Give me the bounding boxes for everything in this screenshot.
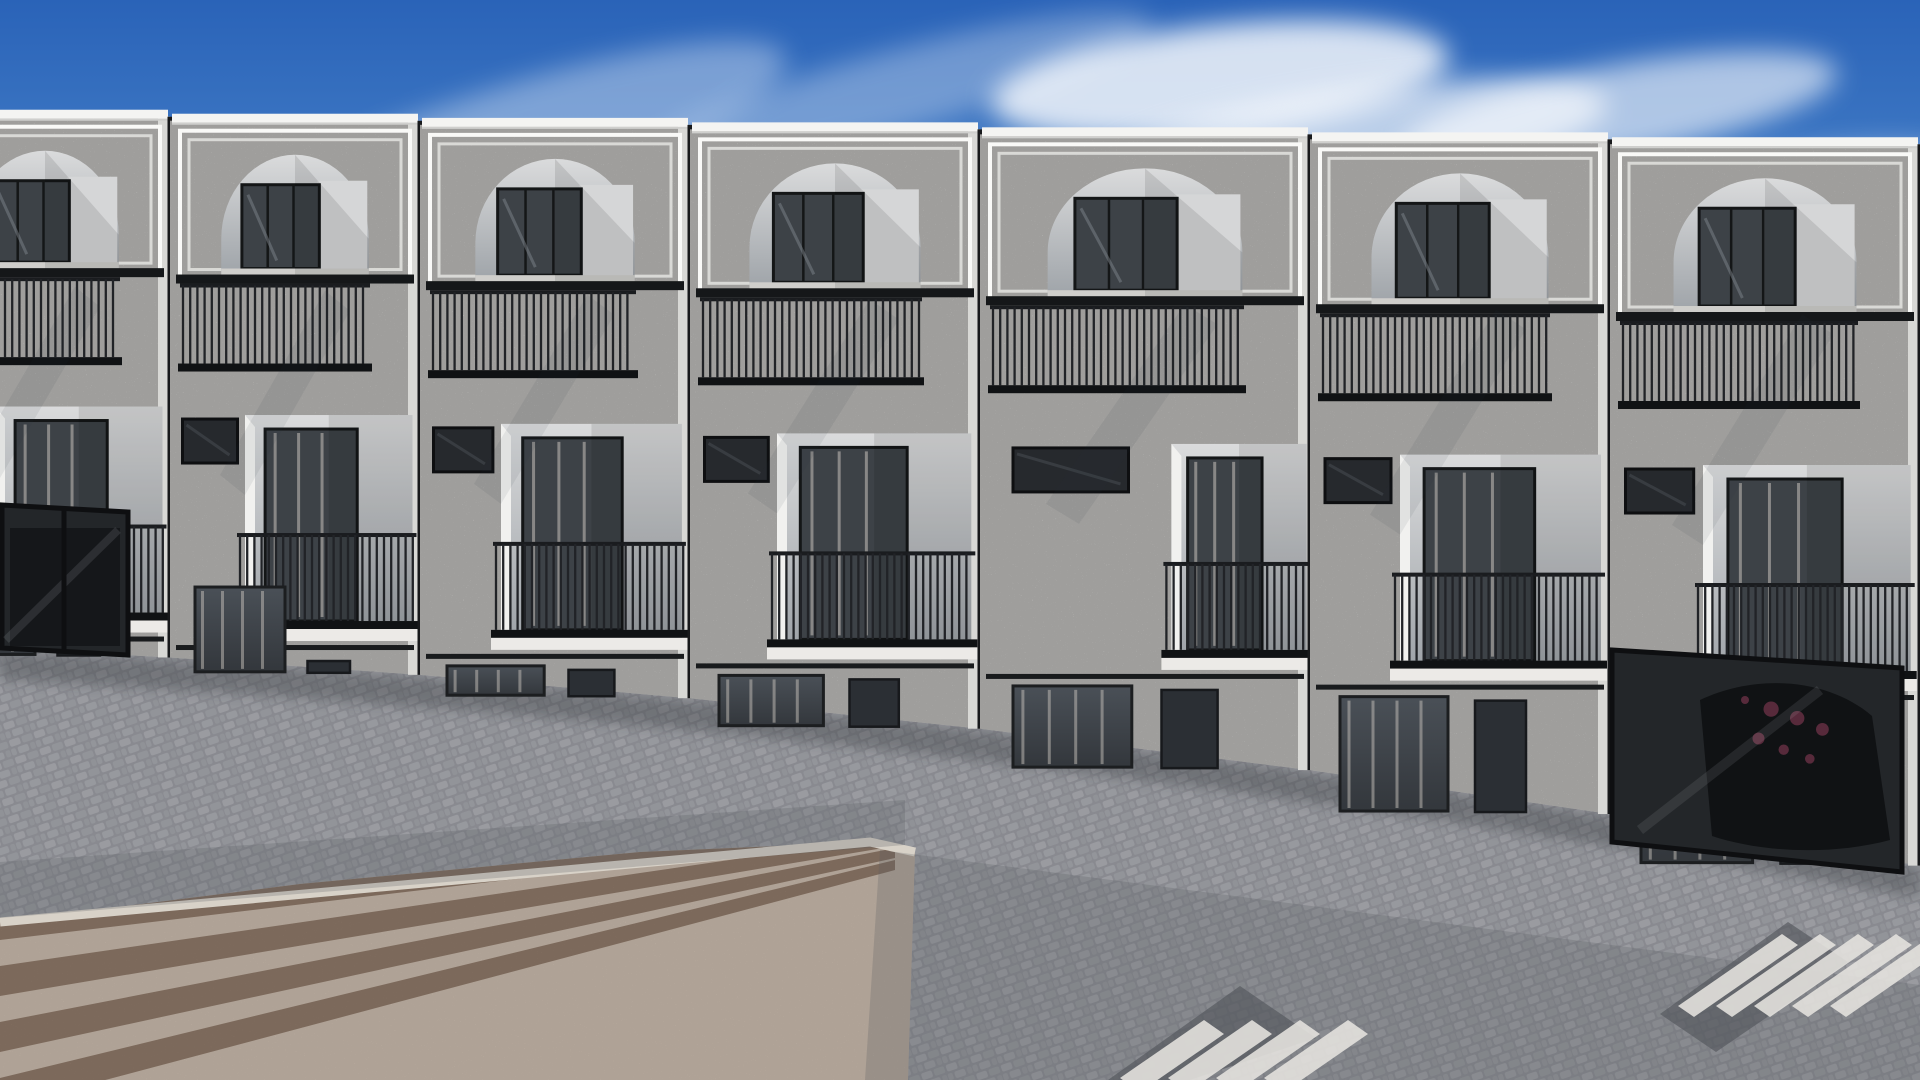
ground-fascia — [426, 654, 684, 659]
garage-glass-left — [2, 505, 128, 655]
parapet-cap — [982, 127, 1308, 136]
ground-window — [1340, 697, 1448, 811]
railing — [698, 297, 924, 385]
ground-window — [447, 666, 544, 695]
ground-fascia — [696, 663, 974, 668]
terrace-coping — [1616, 312, 1914, 321]
terrace-coping — [986, 296, 1304, 305]
terrace-coping — [696, 288, 974, 297]
architectural-rendering — [0, 0, 1920, 1080]
ground-window — [195, 587, 285, 672]
terrace-coping — [426, 281, 684, 290]
render-viewport — [0, 0, 1920, 1080]
entry-door — [1162, 690, 1218, 768]
ground-fascia — [1316, 685, 1604, 690]
entry-door — [308, 661, 351, 673]
parapet-cap — [1312, 132, 1608, 141]
ground-fascia — [986, 674, 1304, 679]
townhouse-unit-6 — [1310, 132, 1610, 814]
entry-door — [850, 679, 899, 726]
entry-door — [1475, 701, 1526, 812]
ground-window — [1013, 686, 1132, 767]
scene-canvas — [0, 0, 1920, 1080]
balcony-slab — [767, 647, 977, 659]
terrace-coping — [176, 275, 414, 284]
parapet-cap — [692, 122, 978, 131]
townhouse-unit-4 — [690, 122, 980, 728]
parapet-cap — [1612, 137, 1918, 146]
parapet-cap — [0, 110, 168, 119]
garage-glass-right — [1612, 650, 1902, 872]
parapet-cap — [422, 118, 688, 127]
balcony-slab — [1161, 658, 1312, 670]
balcony-slab — [1390, 669, 1607, 681]
balcony-slab — [491, 638, 688, 650]
entry-door — [569, 670, 615, 696]
townhouse-unit-5 — [980, 127, 1313, 770]
parapet-cap — [172, 114, 418, 123]
terrace-coping — [1316, 304, 1604, 313]
terrace-coping — [0, 268, 164, 277]
townhouse-unit-3 — [420, 118, 690, 698]
ground-window — [719, 675, 823, 725]
townhouse-unit-2 — [170, 114, 420, 675]
